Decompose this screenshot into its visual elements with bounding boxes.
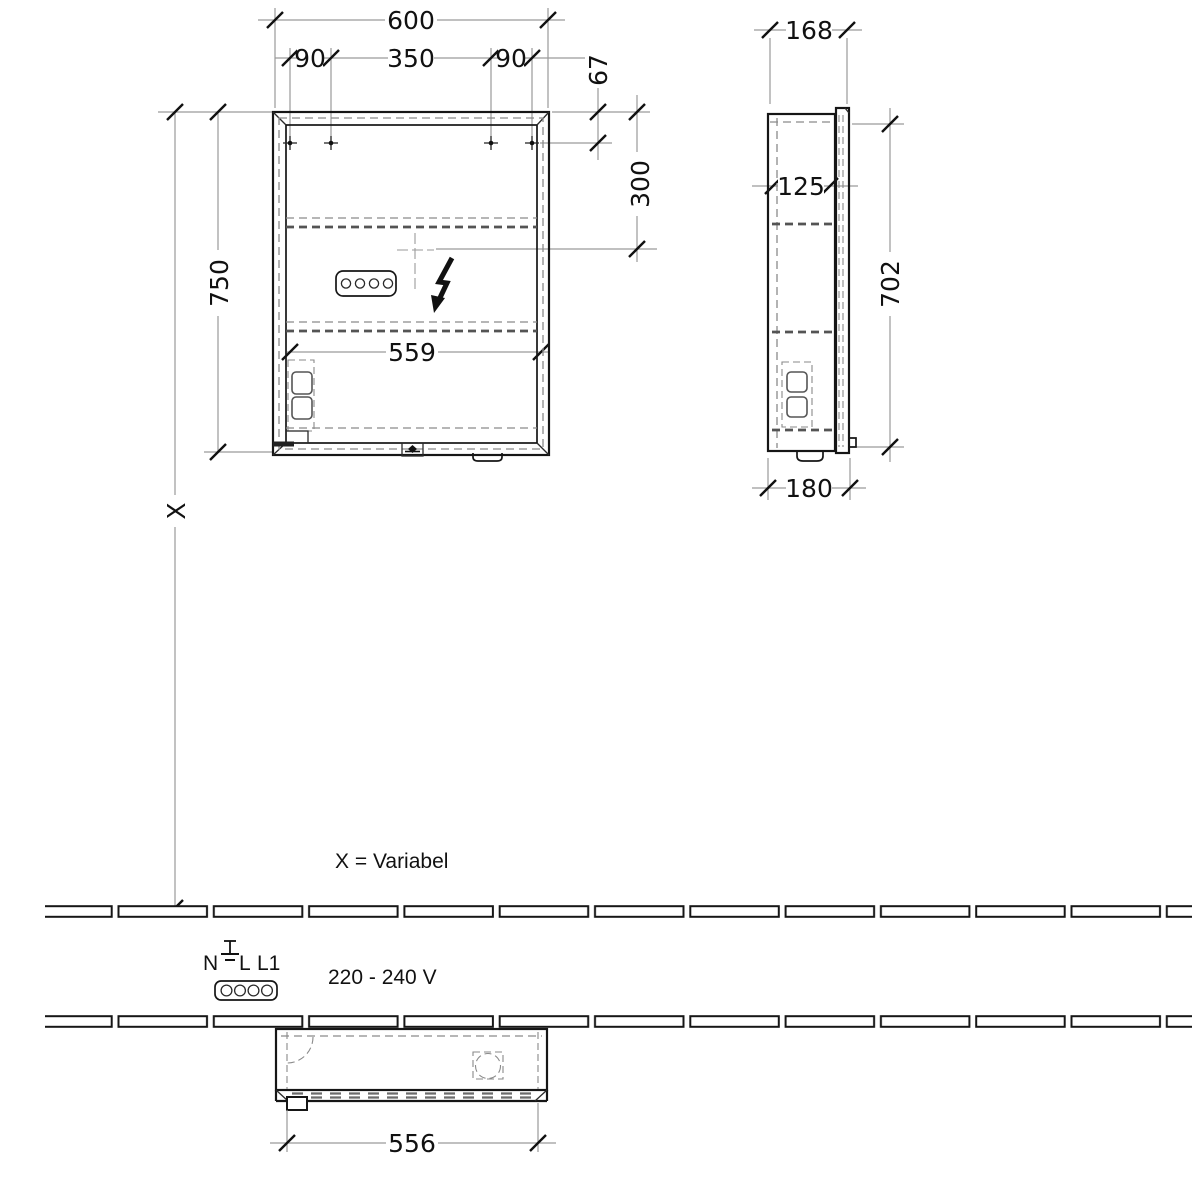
hinge-block <box>287 1097 307 1110</box>
dim-total-depth: 180 <box>785 474 833 503</box>
terminal-label-l1: L1 <box>257 952 280 975</box>
dim-hole-offset-left: 90 <box>294 44 326 73</box>
mounting-hole-icon <box>283 136 297 150</box>
light-bump-icon <box>797 451 823 461</box>
hidden-door-outline <box>279 118 543 449</box>
mounting-hole-icon <box>324 136 338 150</box>
dim-front-width: 600 <box>387 6 435 35</box>
dim-side-height: 702 <box>876 260 905 308</box>
light-fixture-icon <box>473 1052 503 1079</box>
terminal-label-n: N <box>203 952 218 975</box>
lightning-bolt-icon <box>431 258 452 313</box>
terminal-block-icon <box>336 271 396 296</box>
mounting-hole-icon <box>484 136 498 150</box>
dim-front-height: 750 <box>205 259 234 307</box>
ground-icon <box>221 941 239 960</box>
variable-note: X = Variabel <box>335 850 448 873</box>
electronics-box-side <box>782 362 812 427</box>
dim-interior-depth: 125 <box>777 172 825 201</box>
terminal-block-icon-bottom <box>215 981 277 1000</box>
front-dimension-lines <box>158 8 657 916</box>
dim-top-to-holes: 67 <box>584 54 613 86</box>
dim-interior-width: 559 <box>388 338 436 367</box>
front-cabinet-body <box>273 112 549 461</box>
wall-break-line-lower <box>45 1015 1192 1028</box>
dim-top-to-outlet: 300 <box>626 160 655 208</box>
terminal-label-l: L <box>239 952 251 975</box>
dim-door-width: 556 <box>388 1129 436 1158</box>
front-view: 600 90 350 90 67 300 750 559 X <box>158 6 657 916</box>
dim-side-depth: 168 <box>785 16 833 45</box>
side-cabinet-body <box>768 108 856 461</box>
bottom-view: 556 <box>270 1029 556 1158</box>
door-swing-arc <box>287 1037 313 1063</box>
bottom-cabinet-body <box>276 1029 547 1110</box>
dim-wall-distance-x: X <box>162 502 191 519</box>
dim-hole-spacing: 350 <box>387 44 435 73</box>
dim-hole-offset-right: 90 <box>495 44 527 73</box>
side-view: 168 125 702 180 <box>752 16 905 503</box>
wall-break-line-upper <box>45 905 1192 918</box>
voltage-note: 220 - 240 V <box>328 966 437 989</box>
annotations: X = Variabel N L L1 220 - 240 V <box>203 850 448 1000</box>
mounting-hole-markers <box>283 136 539 150</box>
technical-drawing-mirror-cabinet: 600 90 350 90 67 300 750 559 X <box>0 0 1200 1200</box>
